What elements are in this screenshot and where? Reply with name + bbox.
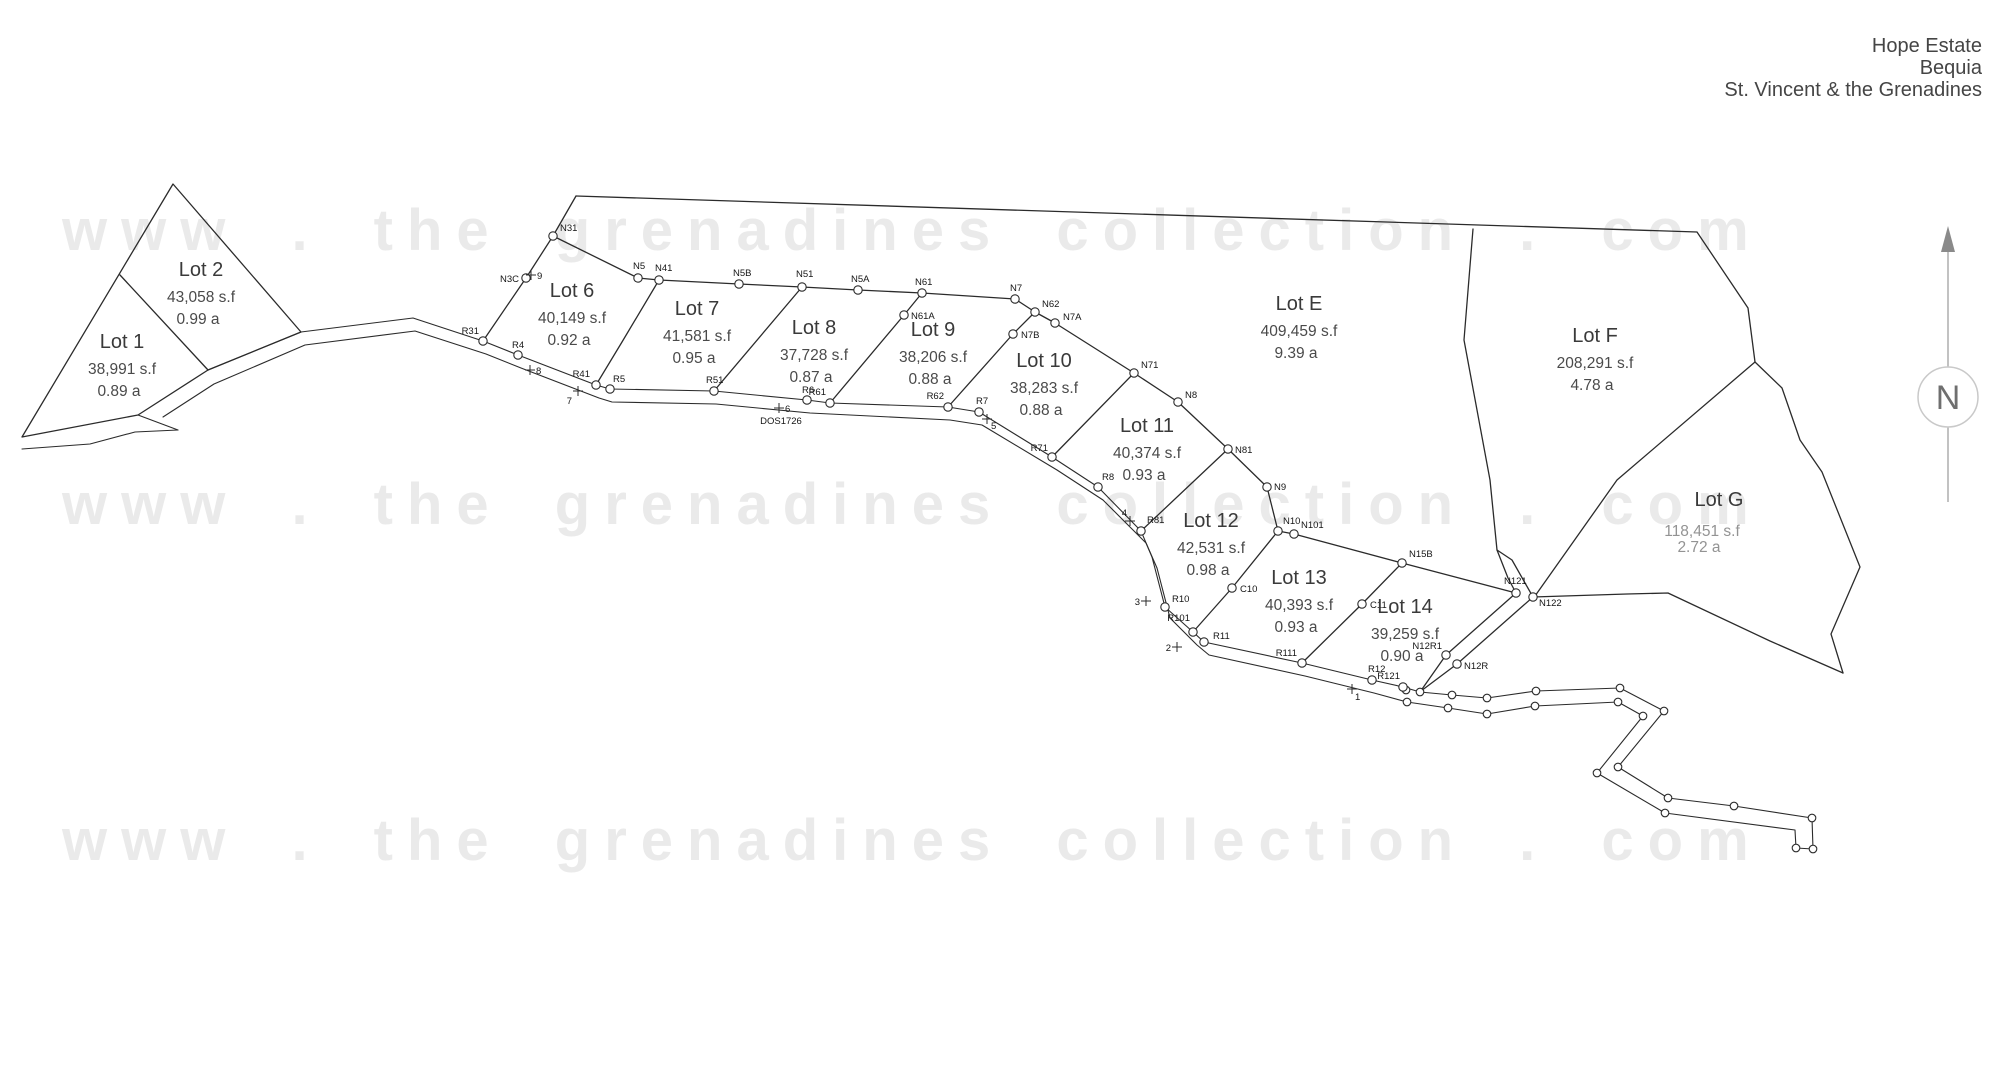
survey-point-label-R61: R61 — [809, 387, 826, 398]
lot-area-acres-F: 4.78 a — [1570, 377, 1613, 394]
lot-area-sf-2: 43,058 s.f — [167, 289, 236, 306]
lot-label-12: Lot 12 — [1183, 510, 1239, 532]
survey-point-label-R121: R121 — [1377, 671, 1400, 682]
lot-area-acres-14: 0.90 a — [1380, 648, 1423, 665]
survey-point-label-R7: R7 — [976, 396, 988, 407]
lot-area-acres-11: 0.93 a — [1122, 467, 1165, 484]
survey-point-N101 — [1290, 530, 1298, 538]
lot-area-sf-1: 38,991 s.f — [88, 361, 157, 378]
survey-point-label-R51: R51 — [706, 375, 723, 386]
lot-area-acres-6: 0.92 a — [547, 332, 590, 349]
survey-point-label-N122: N122 — [1539, 598, 1562, 609]
track-stub-a — [138, 415, 178, 430]
survey-point-label-N9: N9 — [1274, 482, 1286, 493]
survey-point-label-C10: C10 — [1240, 584, 1257, 595]
survey-point-label-N5A: N5A — [851, 274, 870, 285]
survey-point-N61 — [918, 289, 926, 297]
lot-label-F: Lot F — [1572, 325, 1618, 347]
road-marker-circle — [1808, 814, 1816, 822]
road-marker-circle — [1532, 687, 1540, 695]
survey-point-N5 — [634, 274, 642, 282]
lot1-lot2-outline — [22, 184, 301, 437]
road-marker-circle — [1661, 809, 1669, 817]
title-block: Hope Estate Bequia St. Vincent & the Gre… — [1724, 35, 1982, 101]
station-label-2: 2 — [1166, 643, 1171, 654]
north-compass: N — [1918, 226, 1978, 502]
survey-point-R61 — [826, 399, 834, 407]
station-label-4: 4 — [1122, 508, 1127, 519]
station-label-5: 5 — [991, 421, 996, 432]
lot-label-14: Lot 14 — [1377, 596, 1433, 618]
survey-point-N31 — [549, 232, 557, 240]
road-marker-circle — [1448, 691, 1456, 699]
survey-point-label-N81: N81 — [1235, 445, 1252, 456]
survey-point-N71 — [1130, 369, 1138, 377]
survey-point-N15B — [1398, 559, 1406, 567]
survey-point-N9 — [1263, 483, 1271, 491]
road-marker-circle — [1416, 688, 1424, 696]
survey-point-N12R — [1453, 660, 1461, 668]
survey-point-label-N61: N61 — [915, 277, 932, 288]
lot-label-8: Lot 8 — [792, 317, 836, 339]
lot-area-acres-2: 0.99 a — [176, 311, 219, 328]
road-marker-circle — [1809, 845, 1817, 853]
survey-point-label-N5: N5 — [633, 261, 645, 272]
survey-point-label-N101: N101 — [1301, 520, 1324, 531]
survey-point-label-R5: R5 — [613, 374, 625, 385]
survey-point-R11 — [1200, 638, 1208, 646]
lot-area-acres-12: 0.98 a — [1186, 562, 1229, 579]
station-label-9: 9 — [537, 271, 542, 282]
survey-point-R7 — [975, 408, 983, 416]
title-line-island: Bequia — [1724, 57, 1982, 79]
road-marker-circle — [1593, 769, 1601, 777]
plat-map: DOS1726 N31N3CN5N41N5BN51N5AN61N61AN7N62… — [0, 0, 2000, 1076]
lot-area-sf-F: 208,291 s.f — [1557, 355, 1634, 372]
lot-label-10: Lot 10 — [1016, 350, 1072, 372]
survey-point-label-R31: R31 — [462, 326, 479, 337]
lot-label-13: Lot 13 — [1271, 567, 1327, 589]
road-marker-circle — [1403, 698, 1411, 706]
survey-point-label-N7: N7 — [1010, 283, 1022, 294]
survey-point-R51 — [710, 387, 718, 395]
survey-point-label-N15B: N15B — [1409, 549, 1433, 560]
survey-point-label-N121: N121 — [1504, 576, 1527, 587]
survey-point-label-R41: R41 — [573, 369, 590, 380]
survey-point-N12R1 — [1442, 651, 1450, 659]
road-upper-edge — [208, 318, 1813, 849]
survey-point-R62 — [944, 403, 952, 411]
survey-point-N61A — [900, 311, 908, 319]
station-label-3: 3 — [1135, 597, 1140, 608]
road-marker-circle — [1664, 794, 1672, 802]
survey-point-N5A — [854, 286, 862, 294]
survey-point-label-N71: N71 — [1141, 360, 1158, 371]
lot-label-G: Lot G — [1695, 489, 1744, 511]
survey-point-N8 — [1174, 398, 1182, 406]
lot-area-sf-E: 409,459 s.f — [1261, 323, 1338, 340]
survey-point-label-N10: N10 — [1283, 516, 1300, 527]
lot-area-sf-13: 40,393 s.f — [1265, 597, 1334, 614]
road-marker-circle — [1483, 694, 1491, 702]
station-label-1: 1 — [1355, 692, 1360, 703]
survey-point-C10 — [1228, 584, 1236, 592]
lotG-south-edge — [1533, 593, 1843, 673]
title-line-country: St. Vincent & the Grenadines — [1724, 79, 1982, 101]
lot-area-acres-13: 0.93 a — [1274, 619, 1317, 636]
lot-area-sf-9: 38,206 s.f — [899, 349, 968, 366]
lot-area-sf-7: 41,581 s.f — [663, 328, 732, 345]
lot-area-acres-8: 0.87 a — [789, 369, 832, 386]
survey-point-C11 — [1358, 600, 1366, 608]
north-arrow-icon — [1941, 226, 1955, 252]
road-marker-circle — [1531, 702, 1539, 710]
road-marker-circle — [1730, 802, 1738, 810]
survey-point-N7B — [1009, 330, 1017, 338]
survey-point-N41 — [655, 276, 663, 284]
survey-point-R81 — [1137, 527, 1145, 535]
survey-point-label-R71: R71 — [1031, 443, 1048, 454]
survey-point-R4 — [514, 351, 522, 359]
road-marker-circle — [1614, 763, 1622, 771]
survey-point-N7 — [1011, 295, 1019, 303]
survey-point-N10 — [1274, 527, 1282, 535]
survey-point-label-R81: R81 — [1147, 515, 1164, 526]
lot-area-sf-G: 118,451 s.f — [1664, 523, 1740, 540]
survey-point-R121 — [1399, 683, 1407, 691]
survey-point-label-N5B: N5B — [733, 268, 751, 279]
survey-point-label-N7B: N7B — [1021, 330, 1039, 341]
survey-point-label-N3C: N3C — [500, 274, 519, 285]
lotF-west-edge — [1464, 229, 1516, 593]
survey-point-label-R111: R111 — [1276, 648, 1297, 659]
survey-point-label-N12R: N12R — [1464, 661, 1488, 672]
lot-area-sf-14: 39,259 s.f — [1371, 626, 1440, 643]
station-label-7: 7 — [567, 396, 572, 407]
survey-point-R12 — [1368, 676, 1376, 684]
lot-label-1: Lot 1 — [100, 331, 144, 353]
lot-area-sf-12: 42,531 s.f — [1177, 540, 1246, 557]
survey-point-R41 — [592, 381, 600, 389]
survey-point-N122 — [1529, 593, 1537, 601]
lot-label-2: Lot 2 — [179, 259, 223, 281]
road-marker-circle — [1444, 704, 1452, 712]
lot-label-E: Lot E — [1276, 293, 1323, 315]
survey-point-label-R62: R62 — [927, 391, 944, 402]
lot-area-sf-10: 38,283 s.f — [1010, 380, 1079, 397]
road-marker-circle — [1660, 707, 1668, 715]
lot-area-acres-E: 9.39 a — [1274, 345, 1317, 362]
lot-label-9: Lot 9 — [911, 319, 955, 341]
lot-area-acres-1: 0.89 a — [97, 383, 140, 400]
compass-north-label: N — [1936, 379, 1961, 417]
survey-point-label-N62: N62 — [1042, 299, 1059, 310]
lot-area-sf-8: 37,728 s.f — [780, 347, 849, 364]
road-marker-circle — [1792, 844, 1800, 852]
survey-point-N7A — [1051, 319, 1059, 327]
lotF-lotG-divider — [1535, 362, 1755, 596]
survey-point-R31 — [479, 337, 487, 345]
survey-point-label-R11: R11 — [1213, 631, 1230, 642]
road-marker-circle — [1614, 698, 1622, 706]
survey-point-label-R4: R4 — [512, 340, 524, 351]
survey-point-N62 — [1031, 308, 1039, 316]
road-marker-circle — [1639, 712, 1647, 720]
survey-point-N51 — [798, 283, 806, 291]
survey-point-R5 — [606, 385, 614, 393]
lot-area-acres-G: 2.72 a — [1677, 539, 1720, 556]
lot-area-sf-11: 40,374 s.f — [1113, 445, 1182, 462]
survey-point-label-N51: N51 — [796, 269, 813, 280]
survey-point-R8 — [1094, 483, 1102, 491]
lotG-east-edge — [1755, 362, 1860, 673]
survey-point-R111 — [1298, 659, 1306, 667]
station-label-8: 8 — [536, 366, 541, 377]
road-name-label: DOS1726 — [760, 416, 802, 427]
survey-point-R101 — [1189, 628, 1197, 636]
lot-area-sf-6: 40,149 s.f — [538, 310, 607, 327]
survey-point-label-R8: R8 — [1102, 472, 1114, 483]
station-label-6: 6 — [785, 404, 790, 415]
lot-area-acres-9: 0.88 a — [908, 371, 951, 388]
lot-label-7: Lot 7 — [675, 298, 719, 320]
lot-area-acres-10: 0.88 a — [1019, 402, 1062, 419]
lot-label-11: Lot 11 — [1120, 415, 1174, 437]
survey-point-N81 — [1224, 445, 1232, 453]
survey-point-label-R101: R101 — [1167, 613, 1190, 624]
lot-area-acres-7: 0.95 a — [672, 350, 715, 367]
survey-point-R10 — [1161, 603, 1169, 611]
survey-point-label-N8: N8 — [1185, 390, 1197, 401]
title-line-estate: Hope Estate — [1724, 35, 1982, 57]
lot-label-group: Lot 138,991 s.f0.89 aLot 243,058 s.f0.99… — [88, 259, 1744, 665]
lot-label-6: Lot 6 — [550, 280, 594, 302]
survey-point-N5B — [735, 280, 743, 288]
divider-lot6-lot7 — [596, 280, 659, 385]
survey-point-label-N31: N31 — [560, 223, 577, 234]
survey-point-R71 — [1048, 453, 1056, 461]
survey-point-label-N7A: N7A — [1063, 312, 1082, 323]
survey-point-group: N31N3CN5N41N5BN51N5AN61N61AN7N62N7AN7BN7… — [462, 223, 1562, 691]
road-marker-group — [1402, 684, 1817, 853]
road-marker-circle — [1483, 710, 1491, 718]
survey-point-N121 — [1512, 589, 1520, 597]
road-marker-circle — [1616, 684, 1624, 692]
survey-point-label-R10: R10 — [1172, 594, 1189, 605]
survey-point-label-N41: N41 — [655, 263, 672, 274]
